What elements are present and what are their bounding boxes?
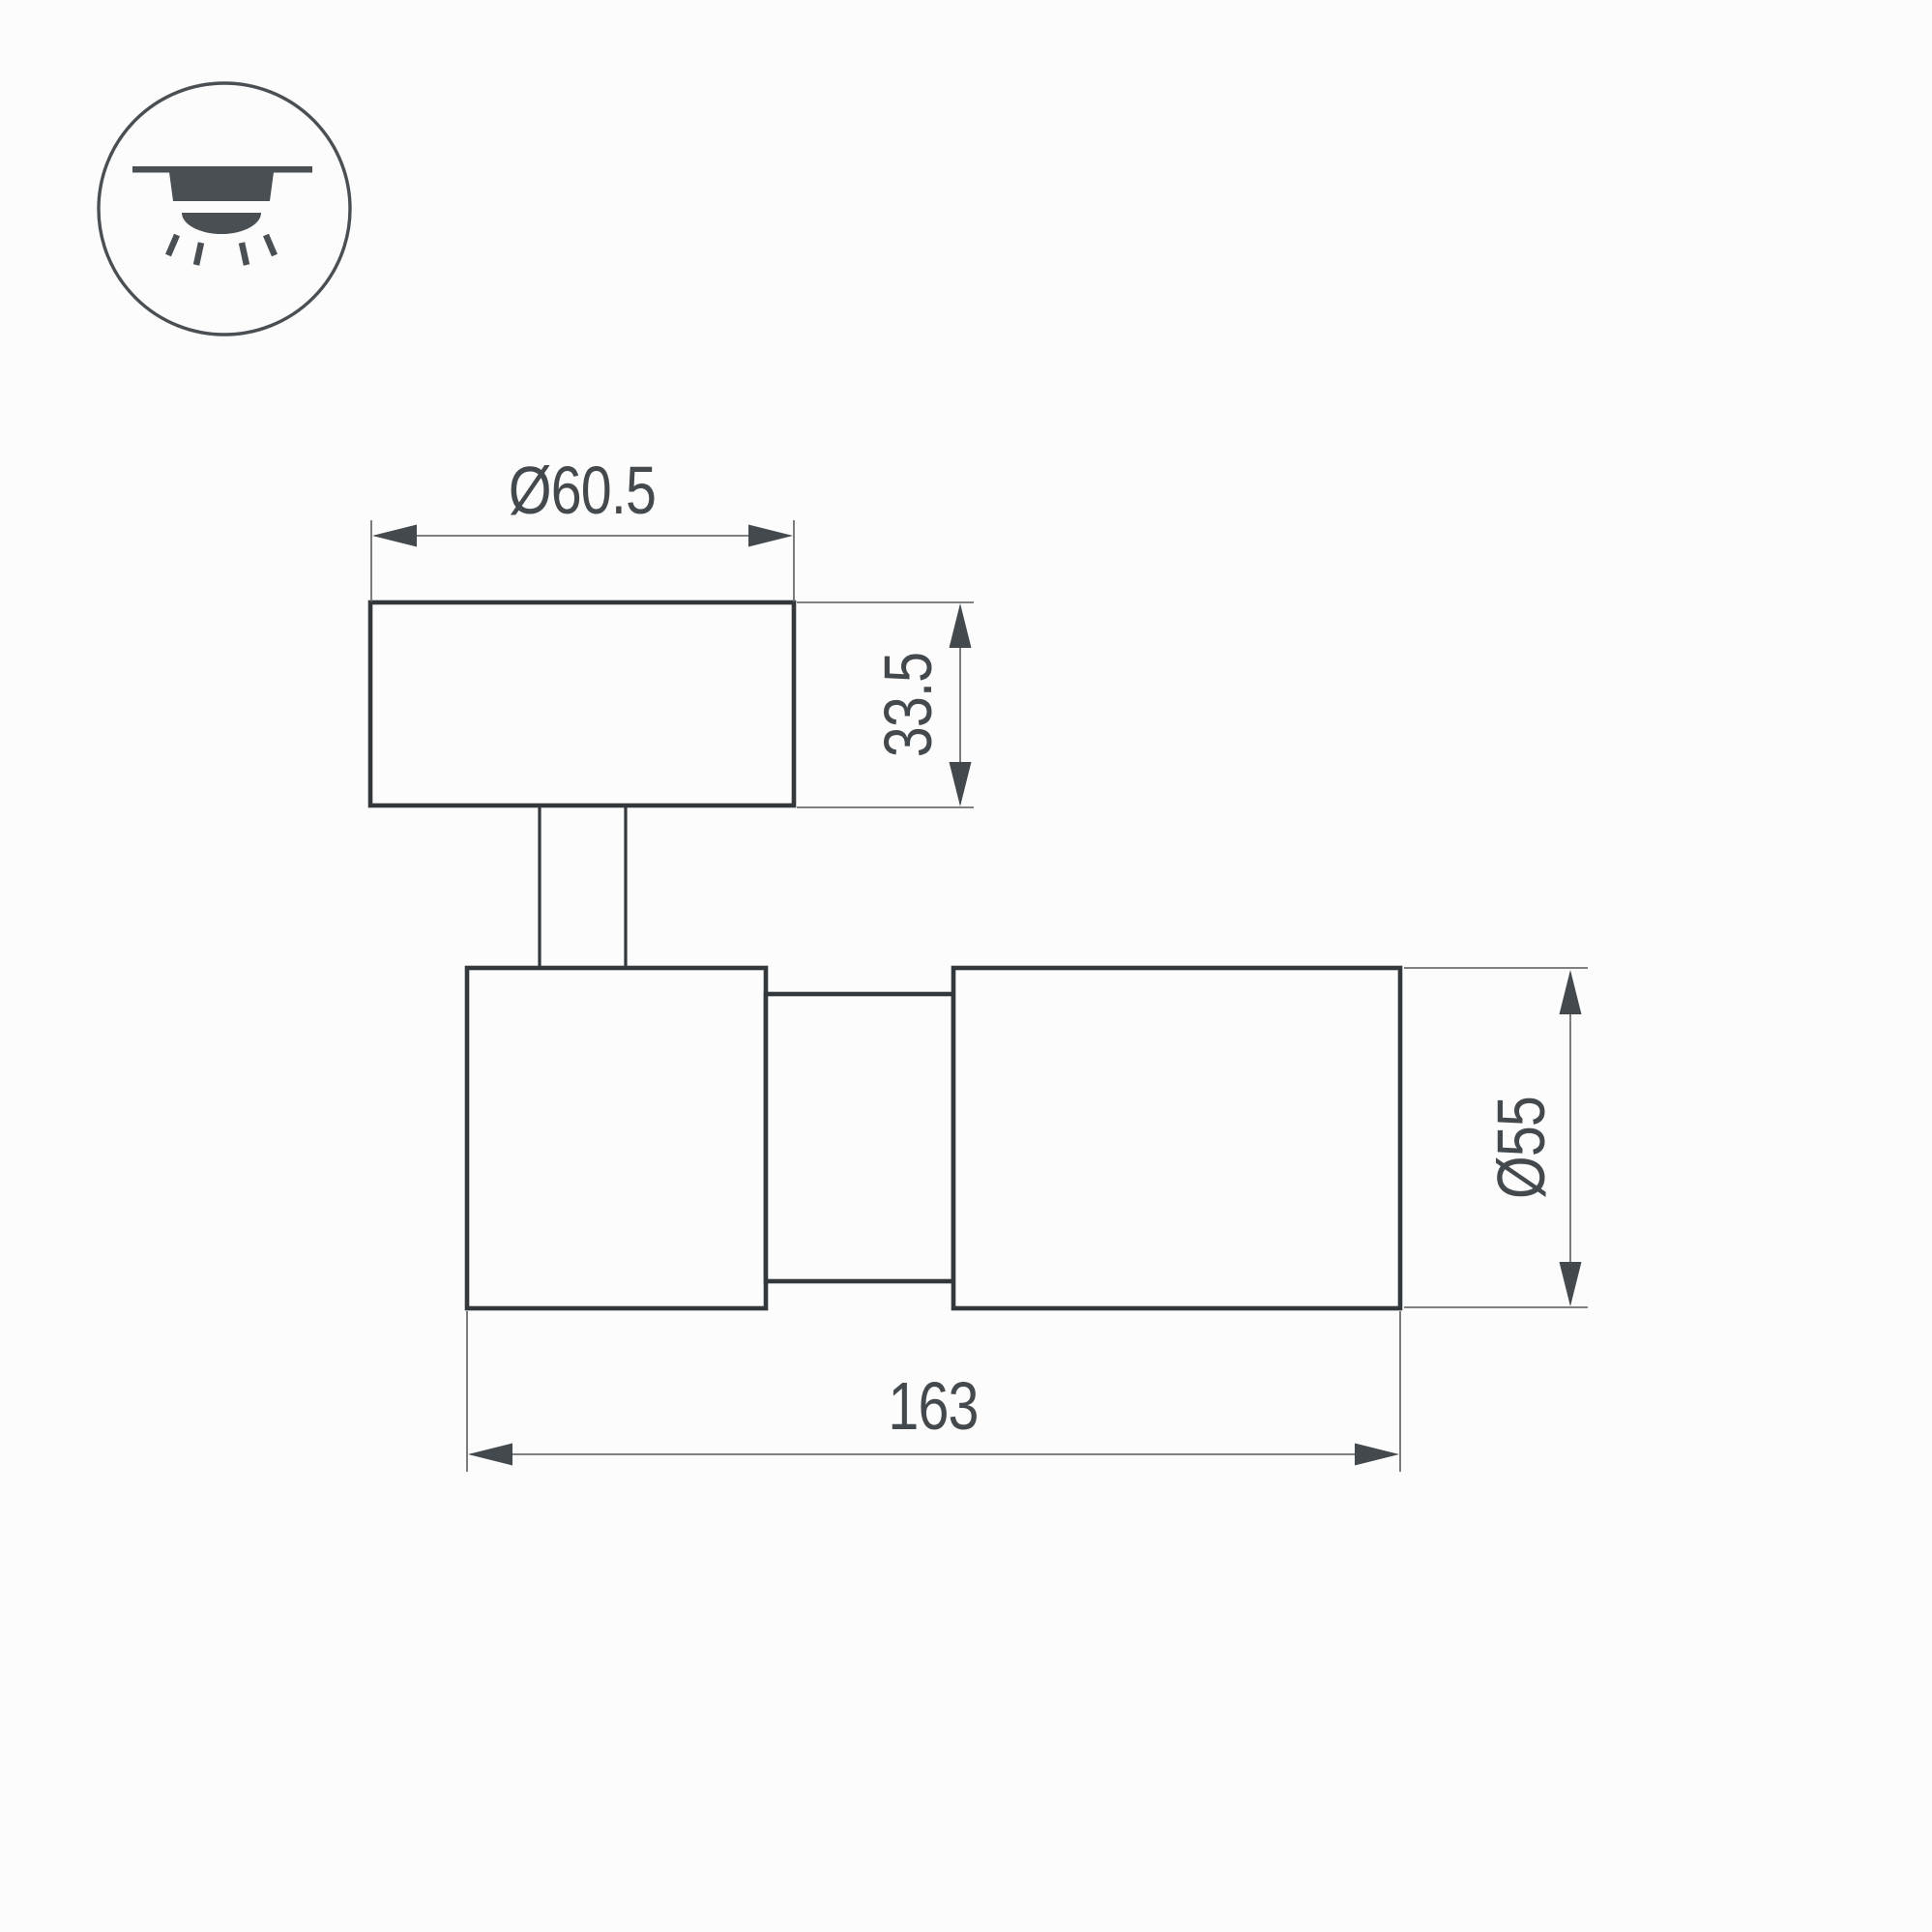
ceiling-mount-light-icon	[99, 83, 350, 335]
arrowhead-top	[950, 603, 972, 648]
body-front-outline	[467, 968, 766, 1308]
dim-body-length-label: 163	[888, 1368, 978, 1445]
arrowhead-top	[1560, 970, 1582, 1014]
arrowhead-left	[372, 525, 417, 547]
body-middle-outline	[766, 994, 953, 1281]
icon-light-ray-3	[242, 243, 247, 265]
dim-body-diameter-label: Ø55	[1483, 1097, 1560, 1199]
mount-base-outline	[370, 602, 794, 805]
arrowhead-bottom	[1560, 1262, 1582, 1306]
icon-recessed-housing	[169, 172, 274, 201]
arrowhead-left	[468, 1444, 512, 1466]
arrowhead-bottom	[950, 762, 972, 806]
dim-top-width: Ø60.5	[371, 453, 794, 601]
dim-base-height-label: 33.5	[870, 653, 947, 757]
technical-drawing-canvas: Ø60.5 33.5 Ø55 163	[0, 0, 1932, 1932]
icon-light-ray-4	[266, 235, 275, 255]
icon-light-ray-1	[168, 235, 177, 255]
icon-light-dome	[182, 213, 261, 234]
spot-light-dimension-drawing: Ø60.5 33.5 Ø55 163	[0, 0, 1932, 1932]
icon-circle-border	[99, 83, 350, 335]
arrowhead-right	[748, 525, 793, 547]
arrowhead-right	[1355, 1444, 1399, 1466]
dim-body-length: 163	[467, 1311, 1400, 1472]
dim-top-width-label: Ø60.5	[509, 453, 656, 529]
dim-body-diameter: Ø55	[1404, 968, 1588, 1307]
dim-base-height: 33.5	[797, 602, 974, 807]
icon-light-ray-2	[196, 243, 201, 265]
body-rear-outline	[953, 968, 1400, 1308]
icon-ceiling-bar	[132, 166, 312, 173]
